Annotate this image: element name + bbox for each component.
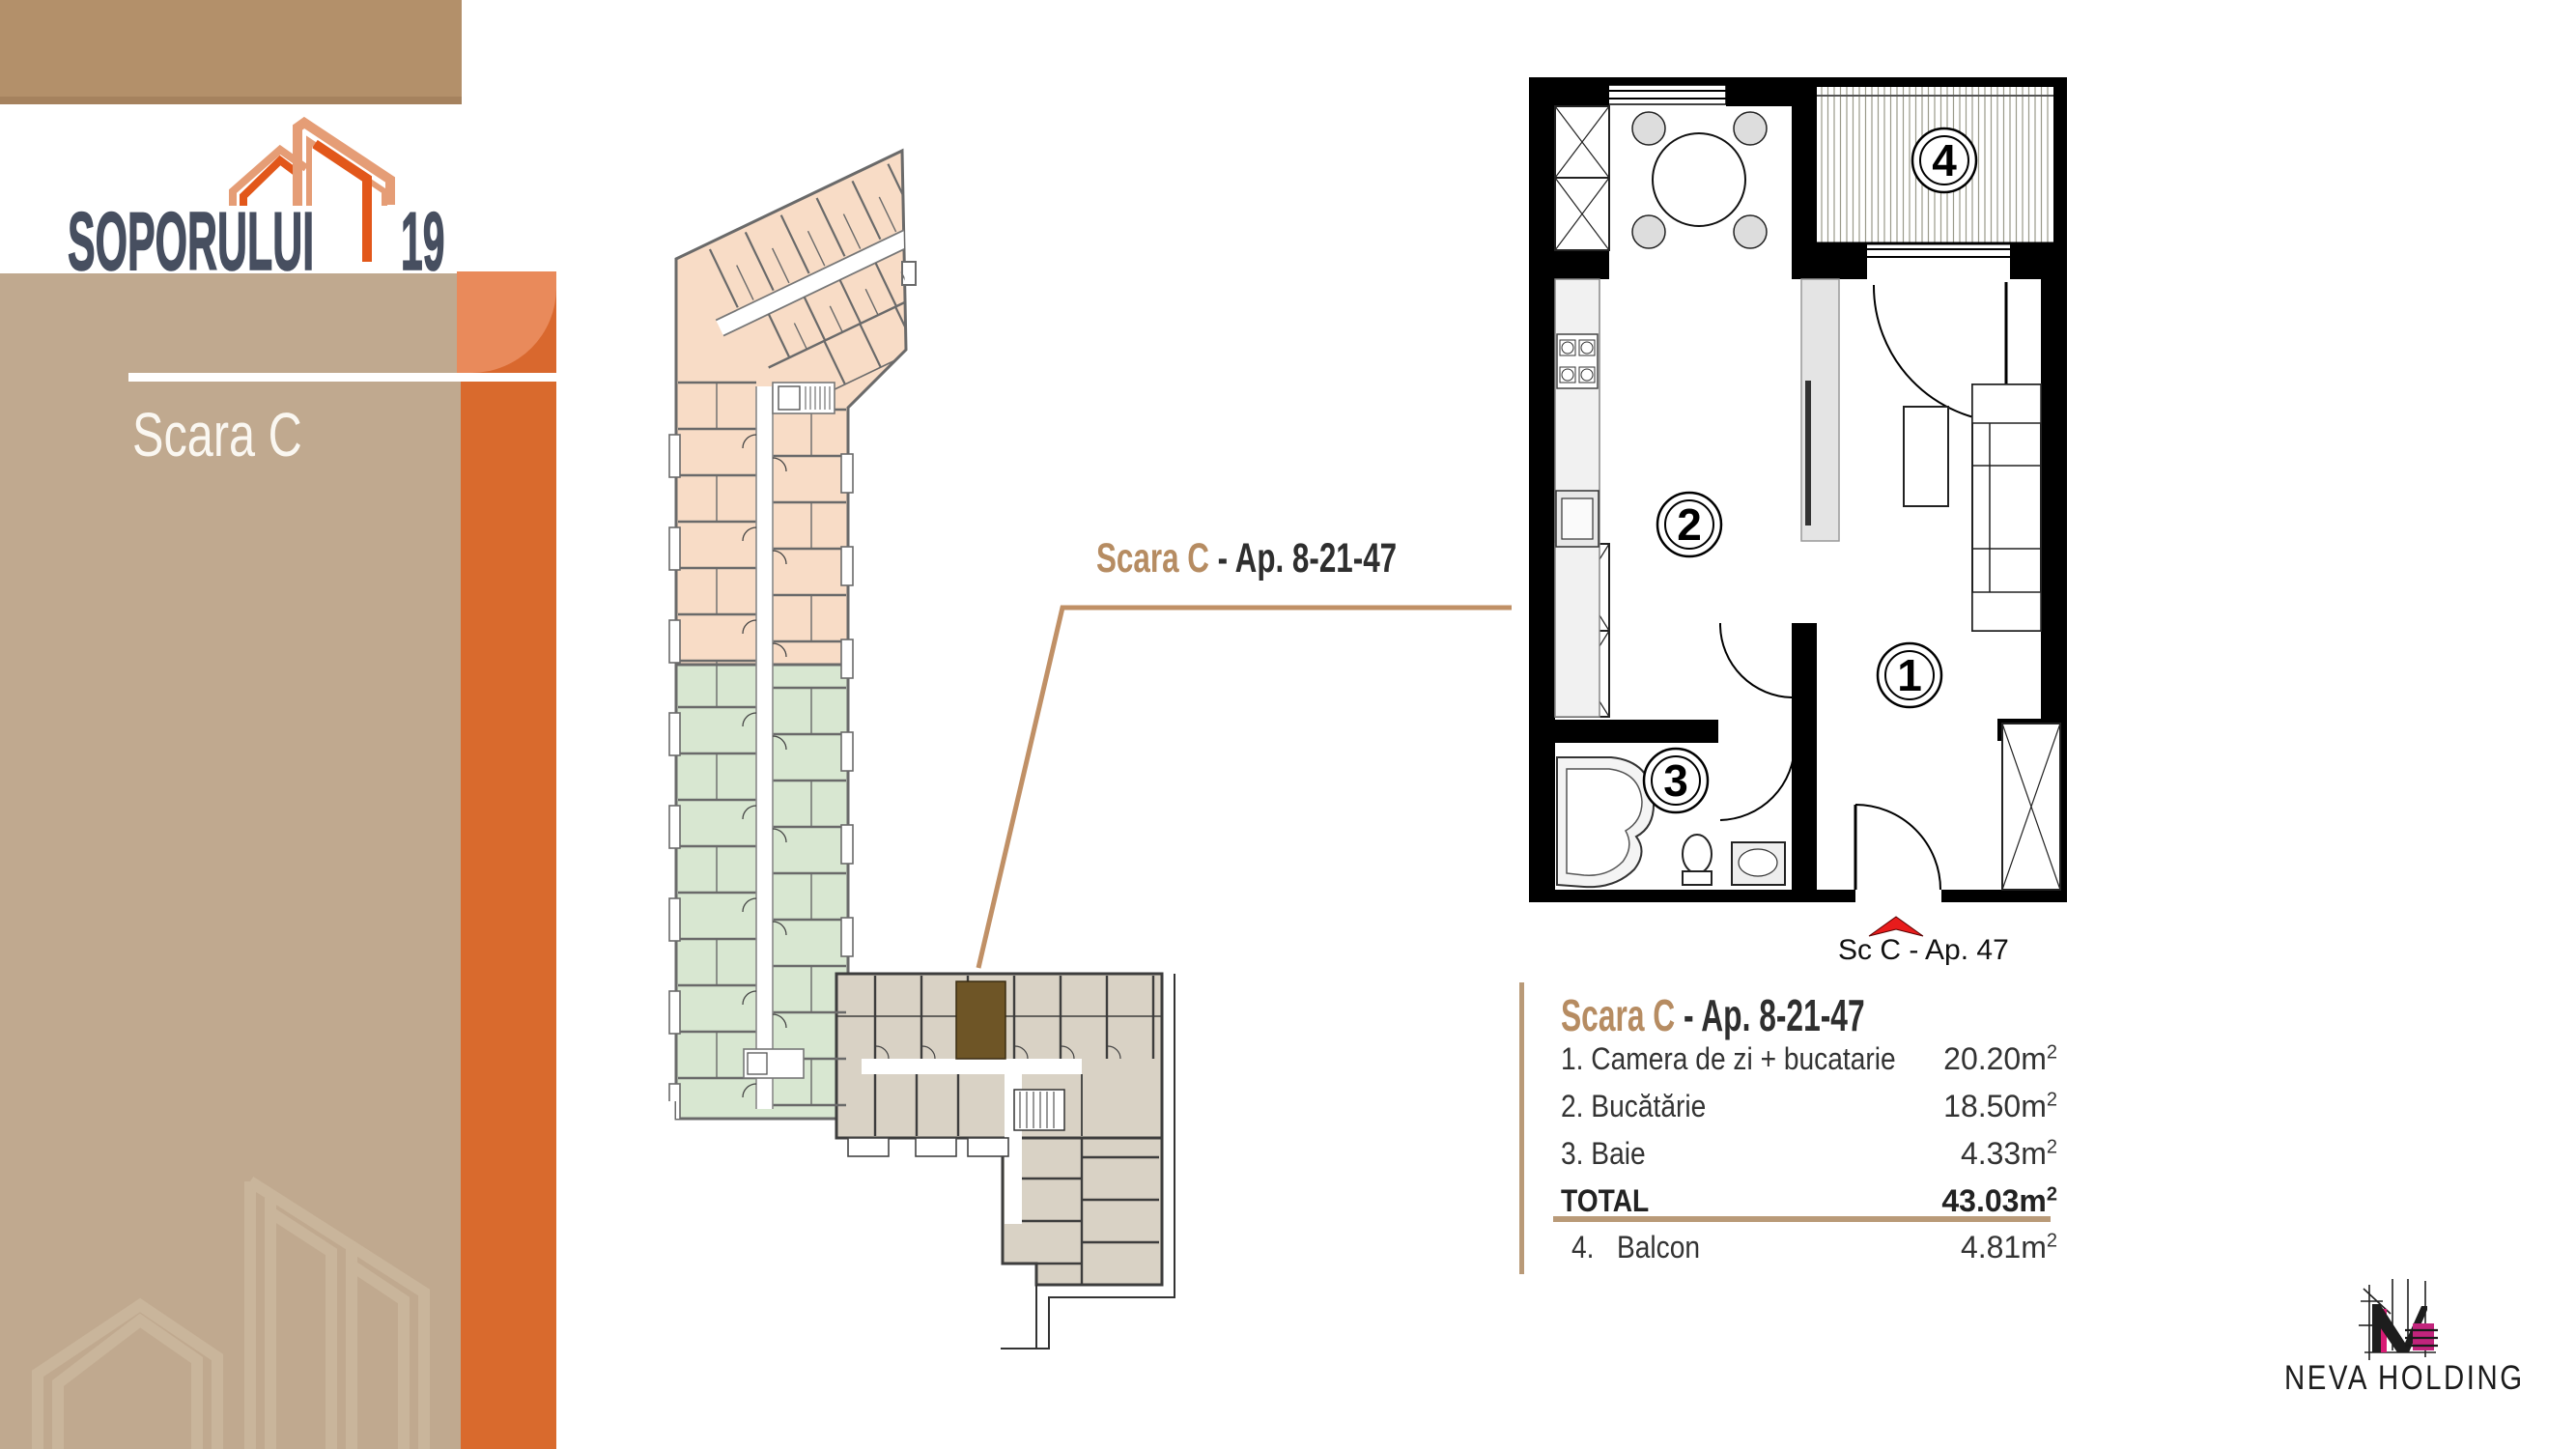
svg-text:2: 2 (1677, 499, 1702, 550)
svg-text:1: 1 (1897, 650, 1922, 700)
svg-text:3: 3 (1663, 755, 1688, 806)
svg-text:4: 4 (1932, 135, 1957, 185)
